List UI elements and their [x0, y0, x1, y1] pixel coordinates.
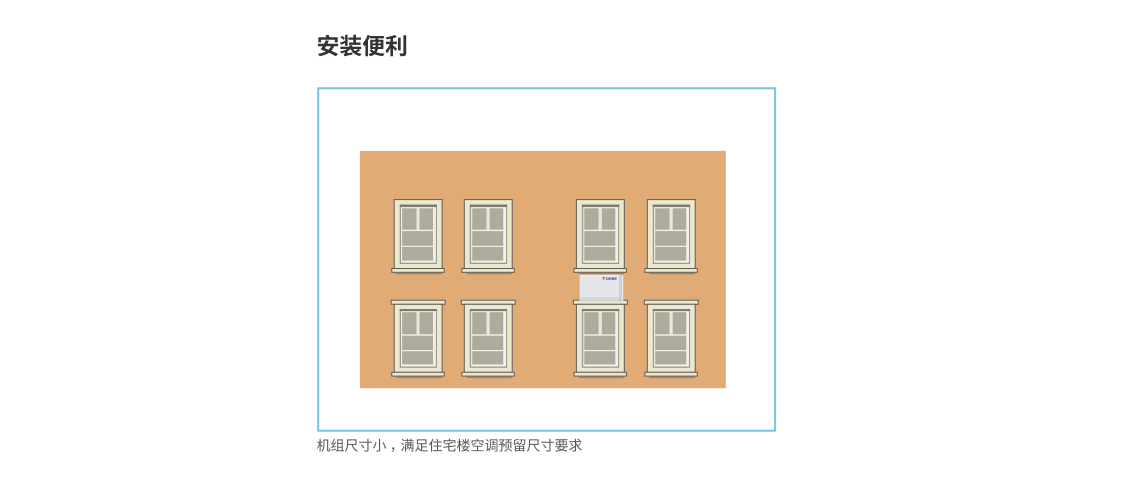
svg-text:GREE: GREE	[606, 276, 617, 281]
